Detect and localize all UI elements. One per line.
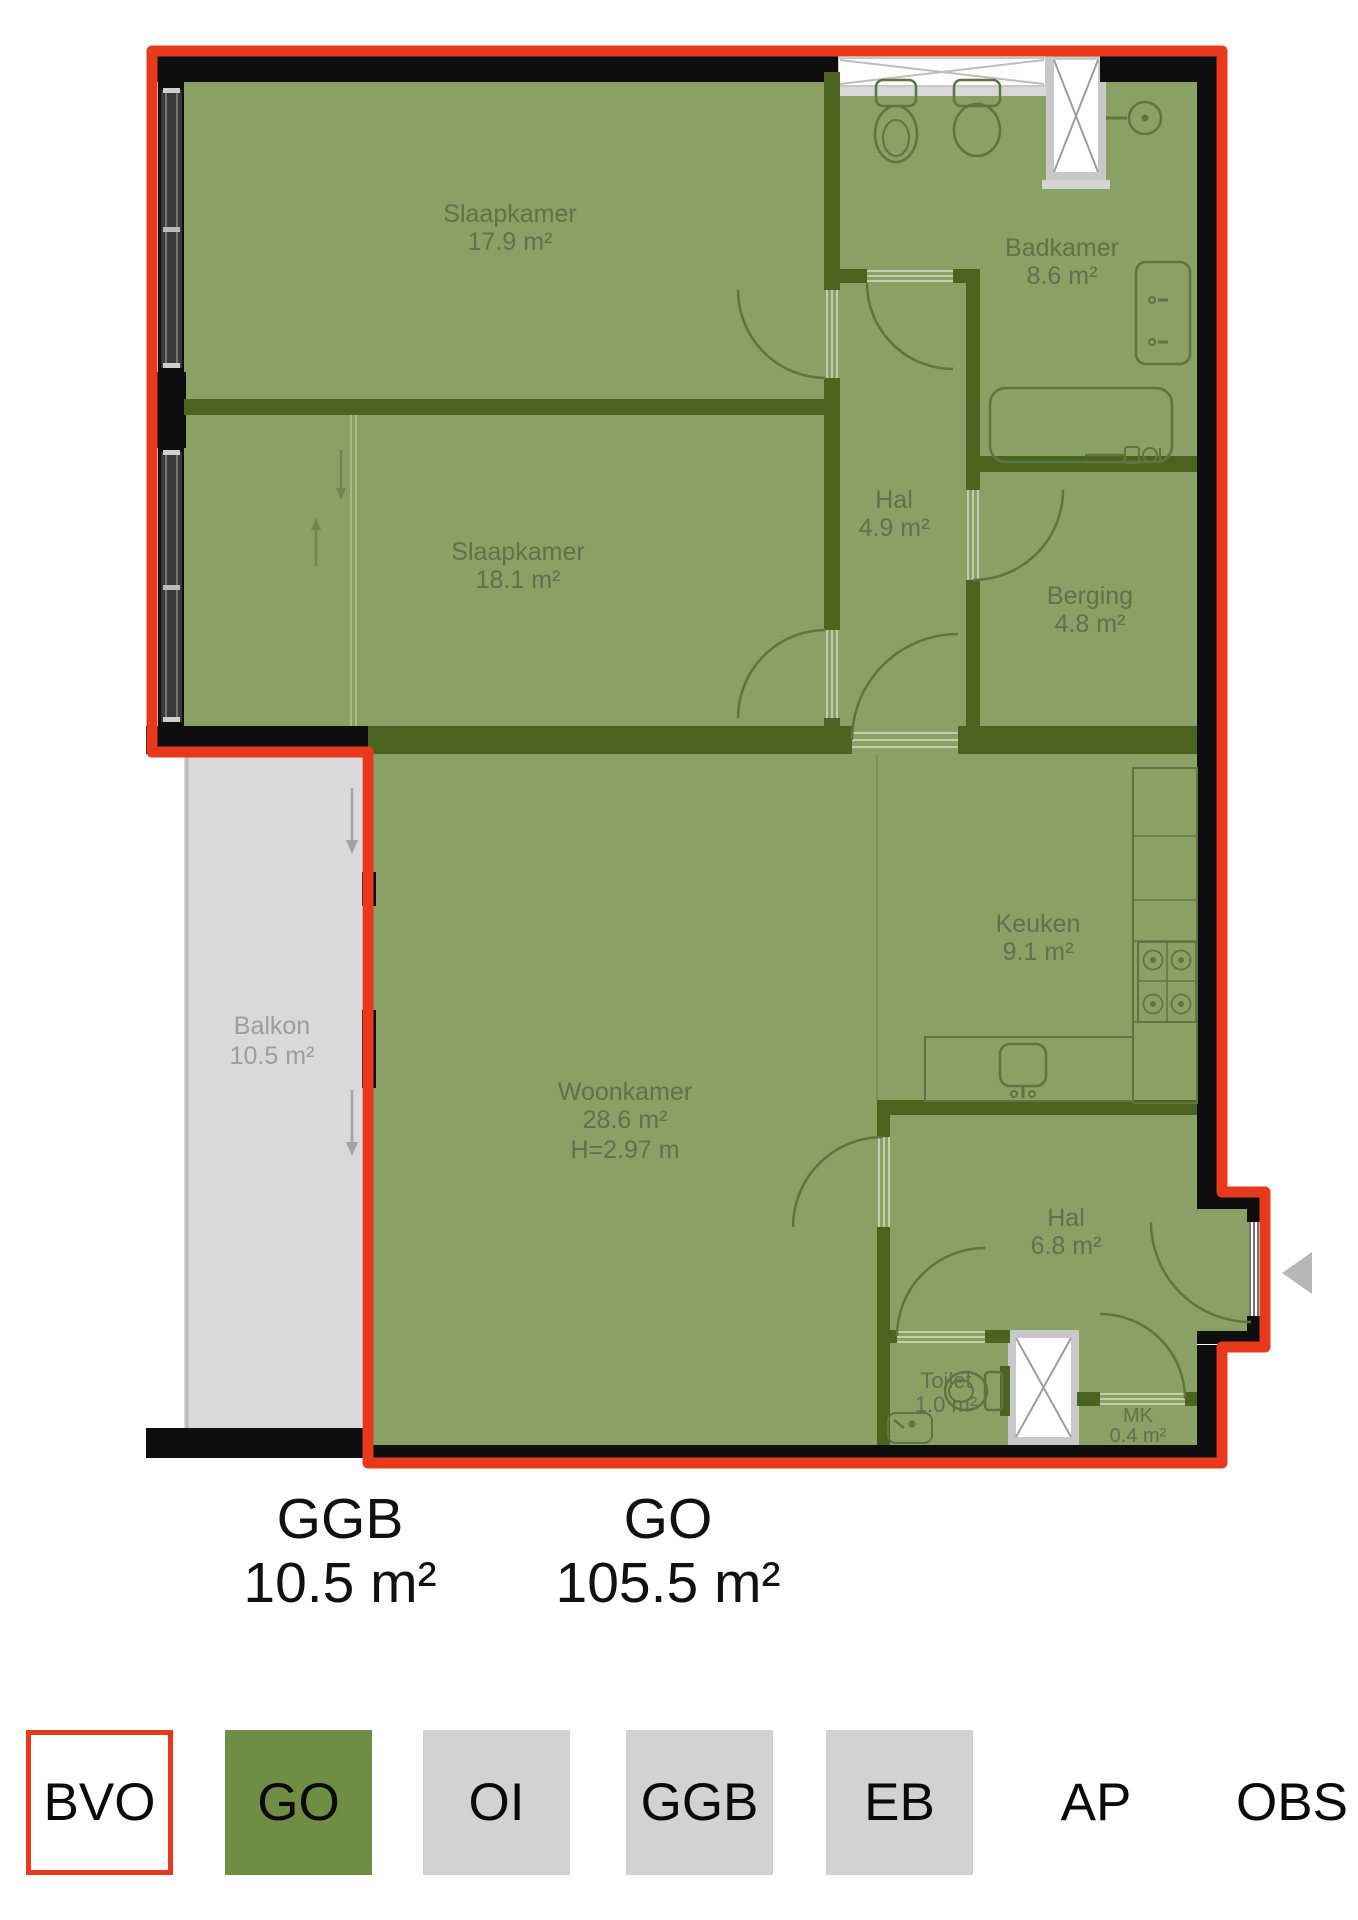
summary-label: GGB (243, 1488, 436, 1552)
room-keuken: Keuken 9.1 m² (996, 910, 1081, 966)
window-icon (161, 450, 182, 722)
room-toilet: Toilet 1.0 m² (915, 1368, 977, 1417)
room-label: Balkon (234, 1012, 310, 1040)
legend-item-ggb: GGB (626, 1730, 773, 1875)
room-label: Toilet (920, 1368, 971, 1393)
legend-item-bvo: BVO (26, 1730, 173, 1875)
legend-label: BVO (44, 1772, 156, 1833)
summary-value: 105.5 m² (556, 1552, 781, 1616)
room-label: Badkamer (1005, 234, 1119, 262)
room-area: 18.1 m² (476, 566, 561, 594)
legend: BVO GO OI GGB EB AP OBS (0, 1730, 1358, 1875)
room-label: Hal (875, 486, 913, 514)
entrance-niche-floor (1197, 1209, 1249, 1331)
floorplan-drawing: Slaapkamer 17.9 m² Badkamer 8.6 m² Slaap… (0, 0, 1358, 1480)
shaft-x-icon (1008, 1330, 1079, 1445)
legend-label: GO (257, 1772, 339, 1833)
entrance-arrow-icon (1282, 1252, 1312, 1294)
room-area: 1.0 m² (915, 1392, 977, 1417)
room-label: Hal (1047, 1204, 1085, 1232)
room-area: 10.5 m² (230, 1042, 315, 1070)
legend-label: OBS (1236, 1772, 1348, 1833)
legend-label: AP (1061, 1772, 1132, 1833)
window-icon (161, 88, 182, 368)
room-label: Woonkamer (558, 1078, 692, 1106)
window-icon (832, 58, 1052, 96)
legend-item-go: GO (225, 1730, 372, 1875)
legend-item-ap: AP (1061, 1730, 1132, 1875)
summary-value: 10.5 m² (243, 1552, 436, 1616)
legend-label: EB (864, 1772, 935, 1833)
room-area: 6.8 m² (1031, 1232, 1102, 1260)
room-label: Slaapkamer (443, 200, 576, 228)
floorplan-page: Slaapkamer 17.9 m² Badkamer 8.6 m² Slaap… (0, 0, 1358, 1920)
room-area: 4.8 m² (1055, 610, 1126, 638)
summary-label: GO (556, 1488, 781, 1552)
room-area: 28.6 m² (583, 1106, 668, 1134)
room-balkon (184, 755, 362, 1430)
room-height: H=2.97 m (570, 1136, 679, 1164)
room-area: 0.4 m² (1110, 1425, 1167, 1447)
room-label: Slaapkamer (451, 538, 584, 566)
summary-go: GO 105.5 m² (556, 1488, 781, 1616)
room-area: 8.6 m² (1027, 262, 1098, 290)
legend-label: OI (469, 1772, 525, 1833)
shaft-x-icon (1042, 52, 1110, 189)
room-label: MK (1123, 1405, 1154, 1427)
entrance-door-leaf (1250, 1222, 1258, 1316)
legend-item-obs: OBS (1236, 1730, 1348, 1875)
room-label: Berging (1047, 582, 1133, 610)
room-berging: Berging 4.8 m² (1047, 582, 1133, 638)
room-area: 4.9 m² (859, 514, 930, 542)
room-label: Keuken (996, 910, 1081, 938)
legend-item-oi: OI (423, 1730, 570, 1875)
room-area: 9.1 m² (1003, 938, 1074, 966)
legend-label: GGB (641, 1772, 759, 1833)
summary-ggb: GGB 10.5 m² (243, 1488, 436, 1616)
room-area: 17.9 m² (468, 228, 553, 256)
legend-item-eb: EB (826, 1730, 973, 1875)
